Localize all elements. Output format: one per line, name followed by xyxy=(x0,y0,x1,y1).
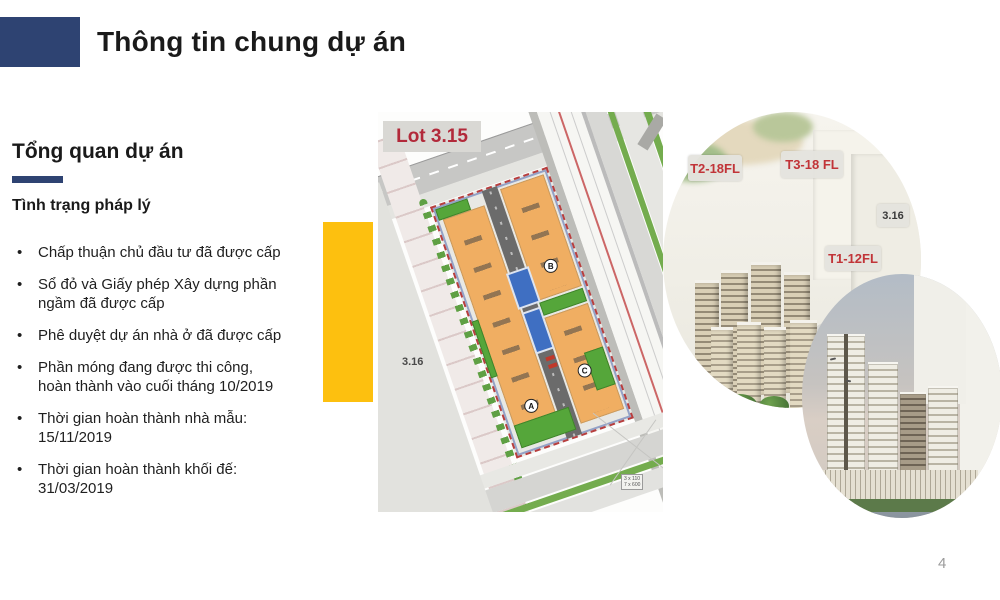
block-c-badge: C xyxy=(578,364,592,378)
page-number: 4 xyxy=(938,555,946,572)
legal-status-list: Chấp thuận chủ đầu tư đã được cấp Sổ đỏ … xyxy=(12,243,323,511)
legal-status-item: Phê duyệt dự án nhà ở đã được cấp xyxy=(38,326,290,345)
tower-label-t3: T3-18 FL xyxy=(781,151,843,178)
city-backdrop-green xyxy=(753,112,813,142)
tree xyxy=(665,352,687,372)
slide: Thông tin chung dự án Tổng quan dự án Tì… xyxy=(0,0,1000,600)
tree xyxy=(693,388,723,408)
site-plan: A B C Lot 3.15 3.16 3 x 110 7 x 600 xyxy=(378,112,663,512)
lot-label: Lot 3.15 xyxy=(383,121,481,152)
plan-dimension-line2: 7 x 600 xyxy=(624,482,640,488)
tower-label-t2: T2-18FL xyxy=(688,155,742,181)
heading-underline xyxy=(12,176,63,183)
tower-label-t1: T1-12FL xyxy=(825,246,881,271)
block-b-badge: B xyxy=(544,259,558,273)
water xyxy=(802,512,1000,518)
neighbor-building xyxy=(960,300,1000,475)
neighbor-building xyxy=(914,274,966,404)
block-a-badge: A xyxy=(524,399,538,413)
legal-status-item: Thời gian hoàn thành khối đế: 31/03/2019 xyxy=(38,460,290,498)
waterfront-render xyxy=(802,274,1000,518)
yellow-accent-bar xyxy=(323,222,373,402)
legal-status-item: Thời gian hoàn thành nhà mẫu: 15/11/2019 xyxy=(38,409,290,447)
podium xyxy=(820,470,978,502)
header-accent-block xyxy=(0,17,80,67)
legal-status-item: Sổ đỏ và Giấy phép Xây dựng phần ngầm đã… xyxy=(38,275,290,313)
adjacent-lot-label: 3.16 xyxy=(402,356,423,368)
subsection-heading: Tình trạng pháp lý xyxy=(12,197,151,215)
section-heading: Tổng quan dự án xyxy=(12,140,184,164)
page-title: Thông tin chung dự án xyxy=(97,26,406,58)
legal-status-item: Phần móng đang được thi công, hoàn thành… xyxy=(38,358,290,396)
legal-status-item: Chấp thuận chủ đầu tư đã được cấp xyxy=(38,243,290,262)
plan-dimension-note: 3 x 110 7 x 600 xyxy=(621,474,643,490)
lot-316-label: 3.16 xyxy=(877,204,909,227)
